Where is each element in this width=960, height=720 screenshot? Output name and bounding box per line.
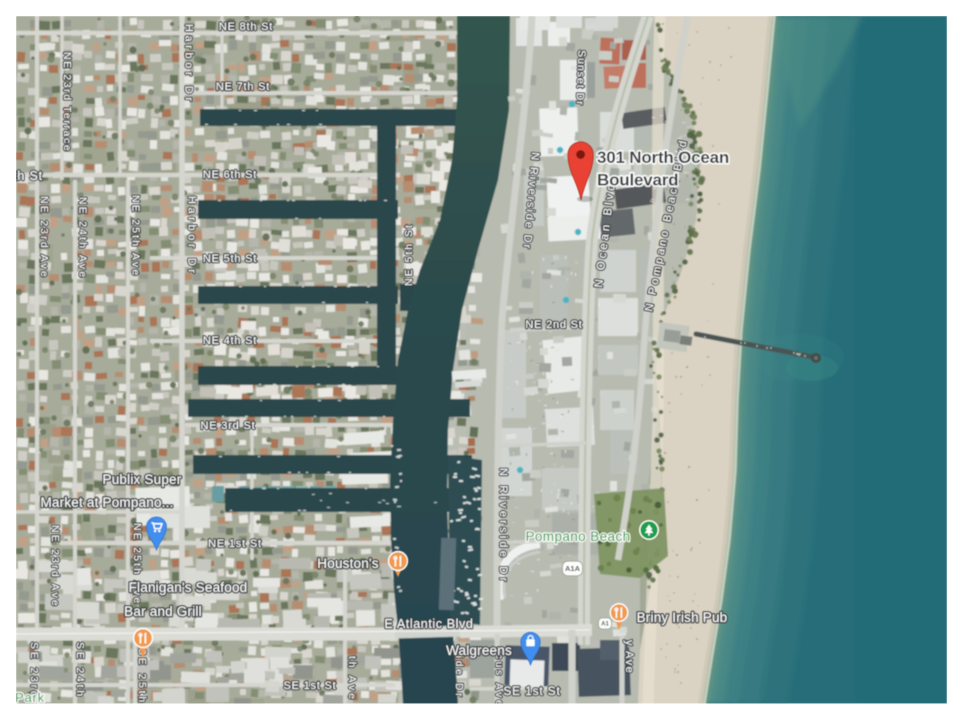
svg-text:A1A: A1A — [565, 564, 581, 573]
svg-text:NE 5th St: NE 5th St — [403, 223, 415, 286]
svg-text:NE 5th St: NE 5th St — [203, 253, 257, 265]
svg-text:NE 23rd Ave: NE 23rd Ave — [38, 196, 50, 279]
svg-text:NE 8th St: NE 8th St — [219, 21, 273, 33]
svg-text:Briny Irish Pub: Briny Irish Pub — [637, 610, 728, 625]
svg-text:NE 6th St: NE 6th St — [203, 169, 257, 181]
svg-text:SE 1st St: SE 1st St — [283, 680, 336, 692]
svg-text:th Ave: th Ave — [346, 656, 358, 702]
svg-text:Harbor Dr: Harbor Dr — [186, 196, 198, 277]
svg-text:SE 25th: SE 25th — [136, 648, 148, 705]
svg-text:SE 24th: SE 24th — [74, 642, 86, 699]
svg-text:Sunset Dr: Sunset Dr — [574, 50, 588, 106]
svg-text:th St: th St — [13, 169, 43, 183]
svg-text:Houston's: Houston's — [317, 556, 378, 571]
svg-text:NE 4th St: NE 4th St — [203, 335, 257, 347]
svg-text:Harbor Dr: Harbor Dr — [183, 24, 195, 105]
svg-text:301 North Ocean: 301 North Ocean — [597, 148, 729, 167]
svg-text:NE 24th Ave: NE 24th Ave — [77, 197, 89, 279]
svg-text:Pompano Beach: Pompano Beach — [525, 529, 630, 544]
svg-text:Publix Super: Publix Super — [103, 472, 182, 487]
svg-text:Flanigan's Seafood: Flanigan's Seafood — [129, 580, 248, 595]
svg-text:y Ave: y Ave — [623, 640, 635, 674]
svg-text:NE 7th St: NE 7th St — [216, 81, 270, 93]
svg-text:SE 1st St: SE 1st St — [503, 684, 560, 698]
svg-text:NE 23rd Terrace: NE 23rd Terrace — [61, 52, 73, 152]
svg-text:NE 25th Ave: NE 25th Ave — [130, 195, 142, 277]
svg-text:cus Ave: cus Ave — [493, 654, 504, 708]
svg-text:Market at Pompano...: Market at Pompano... — [40, 495, 173, 510]
svg-text:NE 3rd St: NE 3rd St — [201, 420, 256, 432]
svg-text:Bar and Grill: Bar and Grill — [124, 604, 202, 619]
svg-text:Boulevard: Boulevard — [597, 171, 678, 190]
svg-text:Walgreens: Walgreens — [446, 643, 512, 658]
svg-text:NE 2nd St: NE 2nd St — [525, 319, 582, 331]
svg-text:E Atlantic Blvd: E Atlantic Blvd — [385, 617, 474, 631]
svg-text:A1: A1 — [601, 622, 609, 628]
svg-text:Park: Park — [15, 690, 45, 705]
svg-text:NE 23rd Ave: NE 23rd Ave — [49, 525, 61, 608]
svg-text:N Riverside Dr: N Riverside Dr — [497, 468, 509, 584]
svg-text:NE 1st St: NE 1st St — [208, 538, 262, 550]
